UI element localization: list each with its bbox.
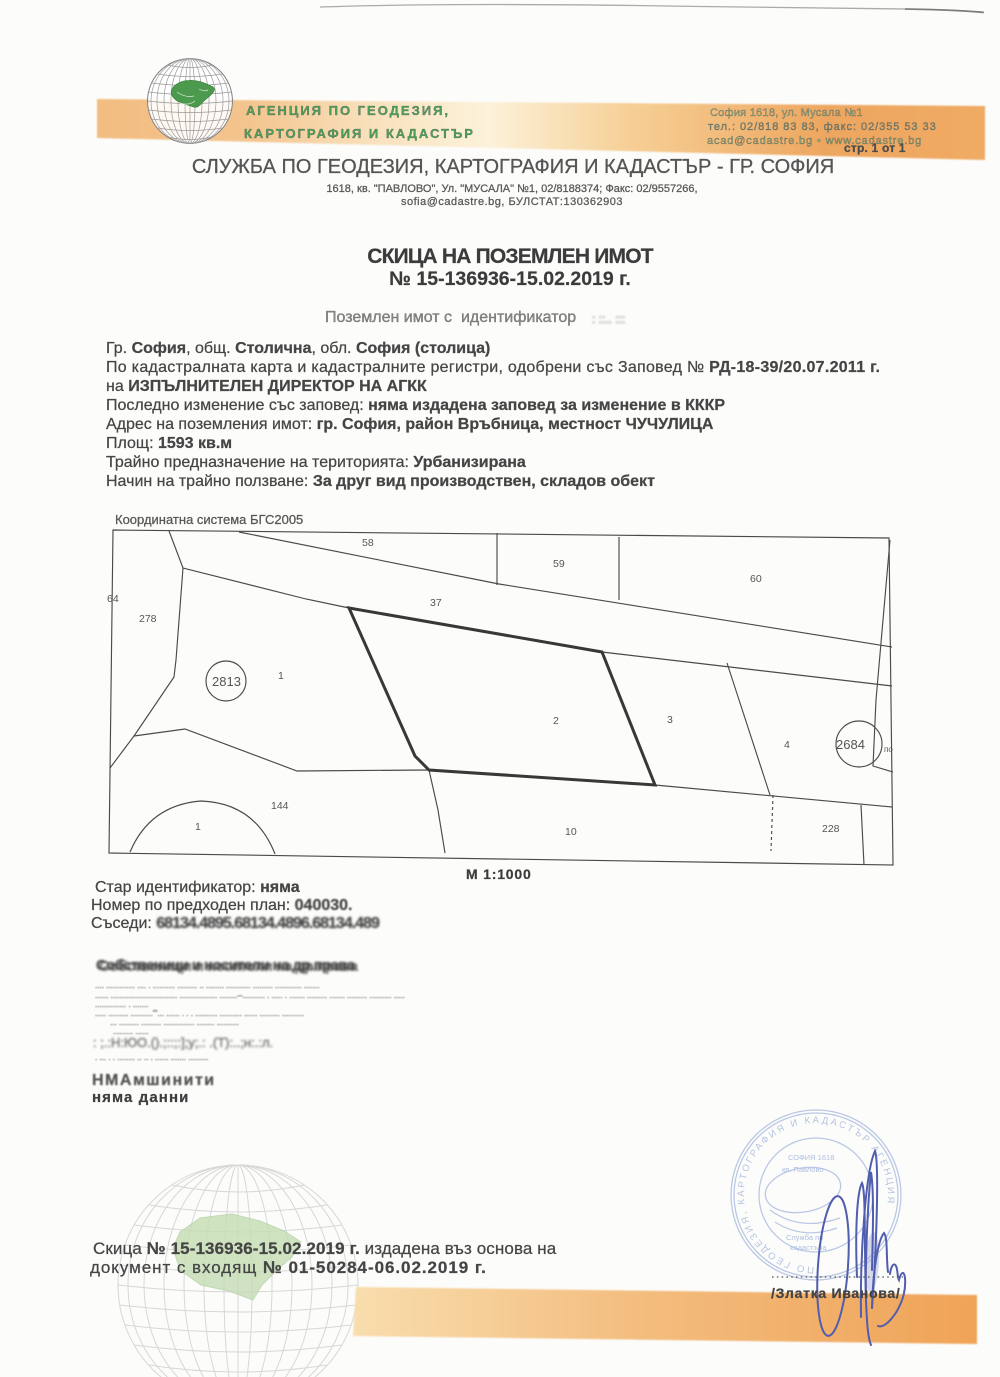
- svg-text:37: 37: [430, 597, 442, 609]
- svg-text:кв. Павлово: кв. Павлово: [782, 1165, 824, 1174]
- svg-text:228: 228: [822, 823, 840, 835]
- svg-text:1: 1: [278, 670, 284, 682]
- svg-text:144: 144: [271, 800, 289, 812]
- svg-text:СОФИЯ 1618: СОФИЯ 1618: [788, 1153, 834, 1162]
- svg-text:1: 1: [195, 821, 201, 833]
- svg-text:64: 64: [107, 593, 119, 605]
- svg-text:2813: 2813: [212, 674, 241, 689]
- svg-text:кадастъра: кадастъра: [790, 1243, 827, 1252]
- svg-text:по: по: [884, 745, 893, 754]
- svg-text:4: 4: [784, 739, 790, 751]
- svg-text:278: 278: [139, 613, 157, 625]
- svg-text:2684: 2684: [836, 737, 865, 752]
- svg-text:60: 60: [750, 573, 762, 585]
- svg-text:2: 2: [553, 715, 559, 727]
- svg-text:58: 58: [362, 537, 374, 549]
- svg-text:10: 10: [565, 826, 577, 838]
- svg-text:59: 59: [553, 558, 565, 570]
- svg-text:3: 3: [667, 714, 673, 726]
- svg-text:Служба по: Служба по: [786, 1233, 823, 1242]
